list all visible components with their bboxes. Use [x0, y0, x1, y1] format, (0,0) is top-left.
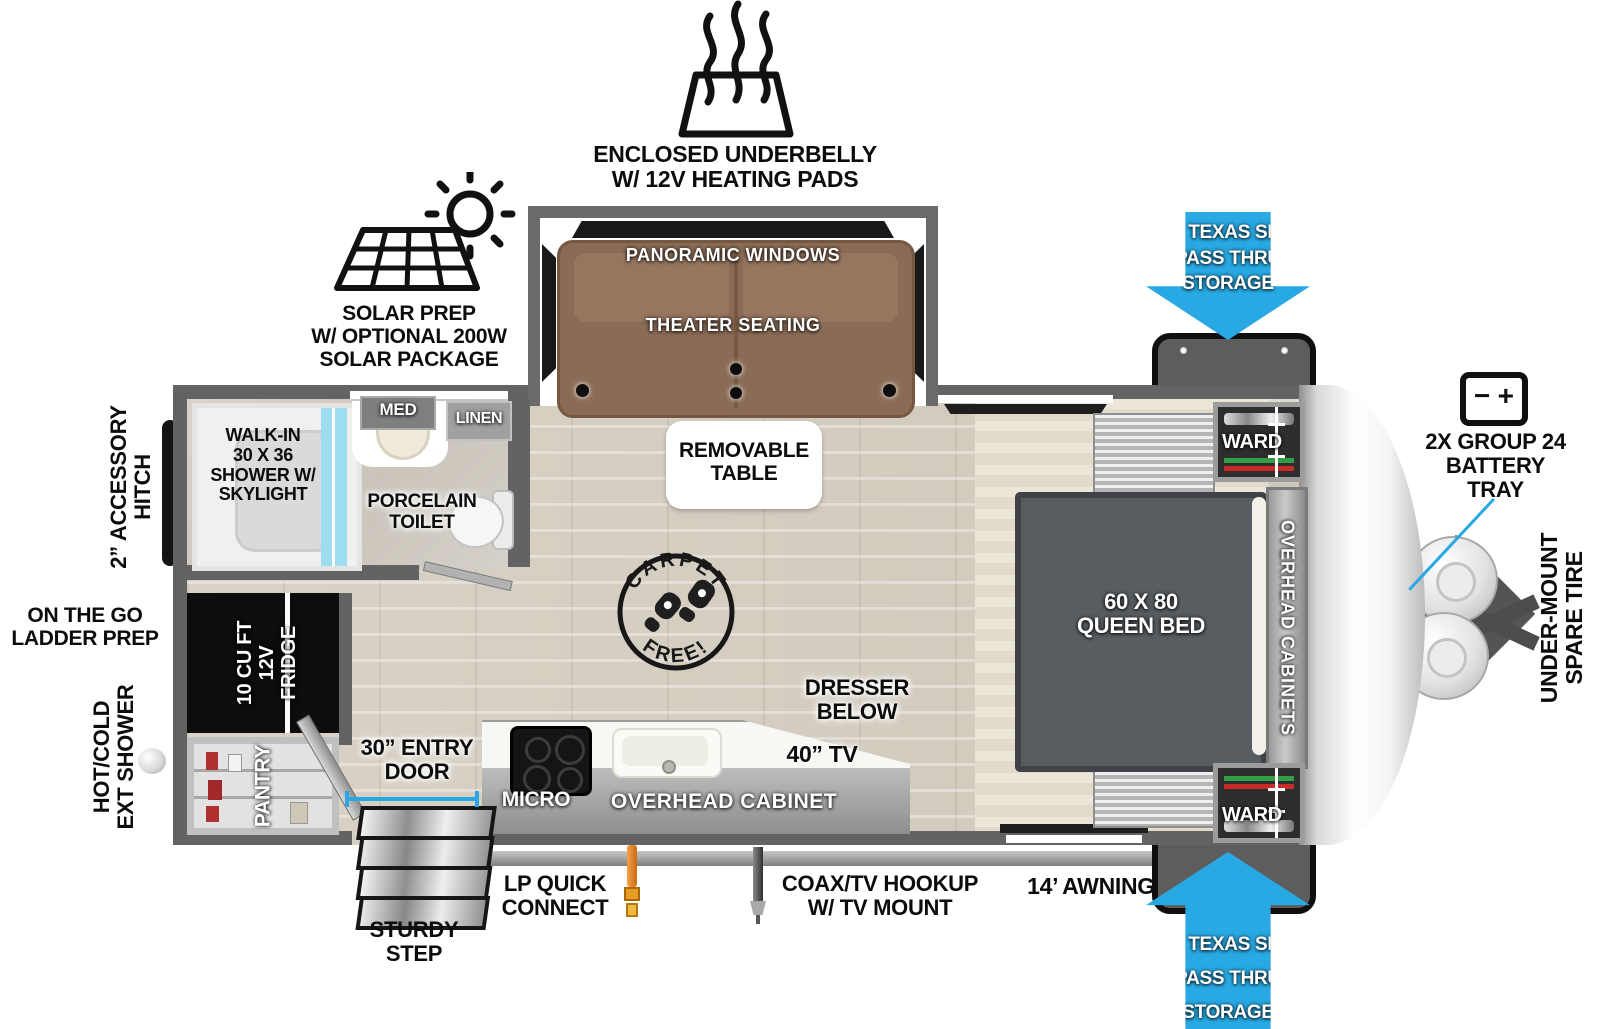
- kitchen-sink: [612, 728, 722, 778]
- solar-panel-icon: [325, 172, 525, 302]
- dresser-below-label: DRESSER BELOW: [790, 676, 924, 724]
- ladder-prep-label: ON THE GO LADDER PREP: [2, 604, 168, 650]
- linen-label: LINEN: [448, 410, 510, 428]
- overhead-cabinets-label: OVERHEAD CABINETS: [1277, 520, 1298, 736]
- med-label: MED: [362, 401, 434, 420]
- entry-door-label: 30” ENTRY DOOR: [342, 736, 492, 784]
- fridge-label: 10 CU FT 12V FRIDGE: [234, 597, 300, 729]
- queen-bed: 60 X 80 QUEEN BED: [1015, 492, 1267, 772]
- removable-table: REMOVABLE TABLE: [666, 421, 822, 509]
- panoramic-windows-label: PANORAMIC WINDOWS: [540, 246, 926, 266]
- linen-cabinet: LINEN: [446, 401, 512, 441]
- pantry-label: PANTRY: [251, 736, 274, 836]
- cooktop: [510, 726, 592, 796]
- ext-shower-label: HOT/COLD EXT SHOWER: [86, 652, 142, 862]
- lp-connect-label: LP QUICK CONNECT: [492, 872, 618, 920]
- interior-wall-galley: [339, 593, 352, 745]
- window-bed-bottom-white: [1006, 835, 1142, 843]
- entry-door-measure-line: [347, 797, 477, 801]
- spare-tire-label: UNDER-MOUNT SPARE TIRE: [1534, 513, 1590, 723]
- toilet-label: PORCELAIN TOILET: [352, 492, 492, 534]
- entry-door-measure-tick-right: [475, 791, 479, 807]
- micro-label: MICRO: [488, 788, 584, 811]
- fridge: 10 CU FT 12V FRIDGE: [187, 593, 347, 733]
- underbelly-label: ENCLOSED UNDERBELLY W/ 12V HEATING PADS: [555, 142, 915, 193]
- pass-thru-arrow-top: XL TEXAS SIZE PASS THRU STORAGE: [1146, 212, 1310, 340]
- coax-label: COAX/TV HOOKUP W/ TV MOUNT: [768, 872, 992, 920]
- solar-label: SOLAR PREP W/ OPTIONAL 200W SOLAR PACKAG…: [295, 302, 523, 371]
- carpet-free-stamp: CARPET FREE!: [610, 546, 742, 678]
- bed-pillow-strip: [1252, 497, 1266, 755]
- battery-plus: +: [1498, 378, 1514, 420]
- overhead-cabinets-strip: OVERHEAD CABINETS: [1266, 487, 1308, 769]
- tv-label: 40” TV: [766, 742, 878, 767]
- heating-pad-icon: [648, 0, 823, 140]
- front-cap: [1299, 385, 1425, 845]
- awning-label: 14’ AWNING: [1016, 874, 1166, 899]
- med-cabinet: MED: [360, 396, 436, 430]
- ext-shower-handle: [138, 748, 166, 774]
- lp-connector-icon: [624, 845, 640, 921]
- battery-minus: −: [1474, 378, 1490, 420]
- battery-icon: − +: [1460, 372, 1528, 426]
- theater-slideout: PANORAMIC WINDOWS THEATER SEATING: [528, 206, 938, 406]
- wardrobe-bottom: WARD: [1213, 763, 1305, 843]
- floorplan-diagram: PANORAMIC WINDOWS THEATER SEATING WALK-I…: [0, 0, 1600, 1029]
- walk-in-shower: WALK-IN 30 X 36 SHOWER W/ SKYLIGHT: [192, 403, 362, 571]
- wardrobe-top: WARD: [1213, 402, 1305, 482]
- ward-top-label: WARD: [1218, 431, 1286, 453]
- queen-bed-label: 60 X 80 QUEEN BED: [1021, 590, 1261, 638]
- window-bed-top-black: [944, 404, 1107, 414]
- battery-label: 2X GROUP 24 BATTERY TRAY: [1413, 430, 1578, 503]
- entry-steps: [339, 806, 499, 932]
- sturdy-step-label: STURDY STEP: [352, 918, 476, 966]
- boot-print-1: [640, 589, 684, 636]
- coax-connector-icon: [750, 847, 766, 925]
- pass-thru-top-label: XL TEXAS SIZE PASS THRU STORAGE: [1146, 220, 1310, 297]
- theater-seating-label: THEATER SEATING: [540, 316, 926, 336]
- nightstand-top: [1093, 413, 1215, 495]
- slide-window-top: [572, 221, 894, 238]
- entry-door-measure-tick-left: [345, 791, 349, 807]
- accessory-hitch-label: 2” ACCESSORY HITCH: [103, 382, 159, 592]
- pass-thru-bottom-label: XL TEXAS SIZE PASS THRU STORAGE: [1146, 928, 1310, 1029]
- window-bed-top-white: [938, 395, 1113, 403]
- removable-table-label: REMOVABLE TABLE: [666, 439, 822, 485]
- ward-bottom-label: WARD: [1218, 804, 1286, 826]
- shower-label: WALK-IN 30 X 36 SHOWER W/ SKYLIGHT: [183, 426, 343, 505]
- overhead-cabinet-label: OVERHEAD CABINET: [590, 790, 858, 813]
